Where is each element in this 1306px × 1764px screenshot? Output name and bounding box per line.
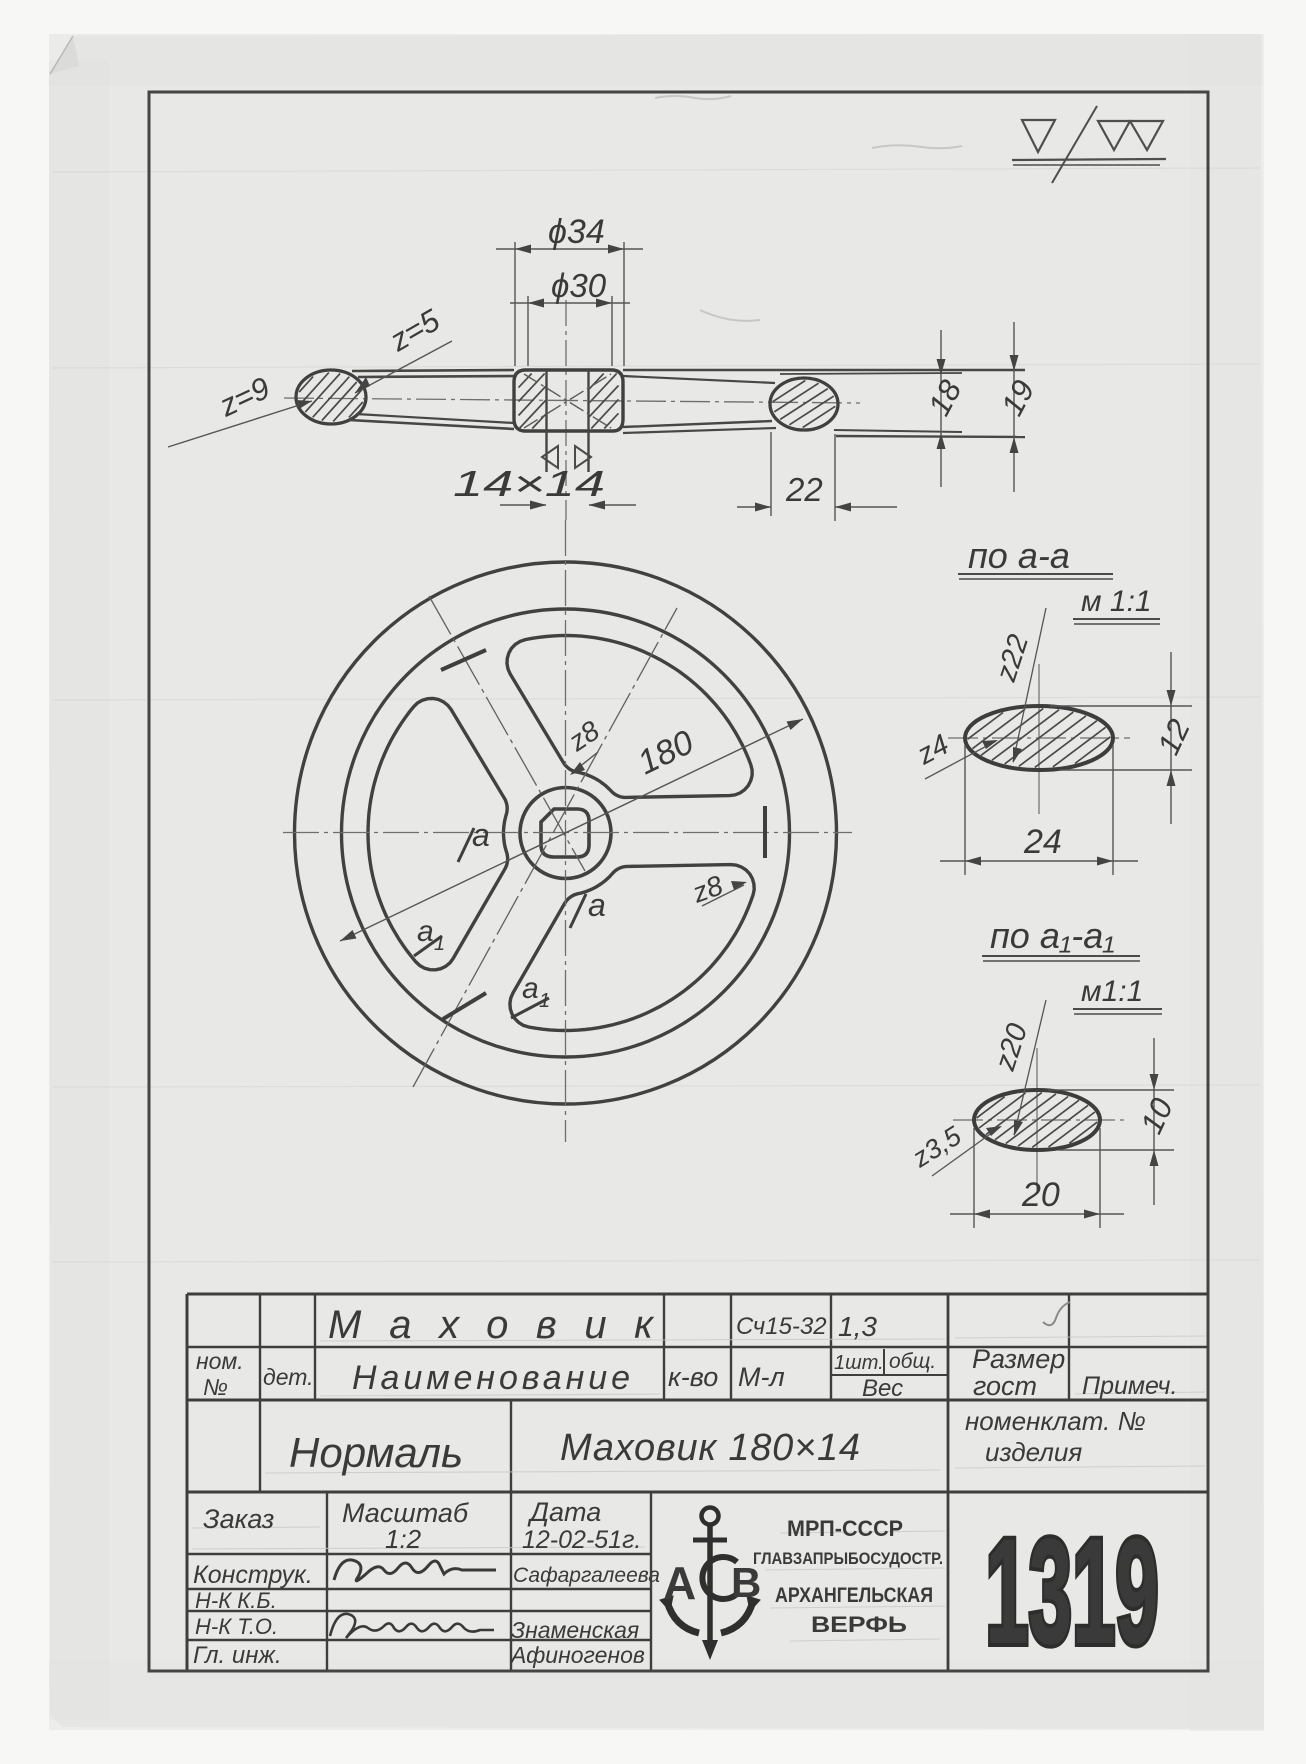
svg-text:22: 22 [785,471,823,508]
svg-text:общ.: общ. [889,1350,936,1373]
svg-text:24: 24 [1023,823,1062,861]
svg-text:Сч15-32: Сч15-32 [736,1313,827,1340]
svg-text:Примеч.: Примеч. [1082,1372,1177,1400]
svg-text:Гл. инж.: Гл. инж. [193,1642,282,1669]
svg-text:изделия: изделия [985,1437,1082,1467]
svg-text:ном.: ном. [196,1348,244,1374]
svg-text:Сафаргалеева: Сафаргалеева [513,1564,660,1587]
svg-text:Н-К К.Б.: Н-К К.Б. [195,1588,277,1613]
svg-text:Афиногенов: Афиногенов [509,1642,645,1668]
svg-text:А: А [663,1557,696,1609]
svg-text:Дата: Дата [527,1497,601,1527]
svg-text:Конструк.: Конструк. [193,1561,313,1589]
svg-text:20: 20 [1021,1176,1060,1214]
svg-text:1: 1 [539,990,550,1012]
svg-text:Размер: Размер [972,1344,1065,1374]
svg-text:ϕ30: ϕ30 [551,267,607,304]
svg-text:ϕ34: ϕ34 [548,213,605,251]
svg-text:ГЛАВЗАПРЫБОСУДОСТР.: ГЛАВЗАПРЫБОСУДОСТР. [753,1549,943,1568]
svg-text:1:2: 1:2 [385,1524,422,1554]
svg-text:14×14: 14×14 [453,463,605,504]
svg-text:Нормаль: Нормаль [289,1429,463,1476]
svg-text:по а₁-а₁: по а₁-а₁ [990,915,1115,956]
svg-text:12-02-51г.: 12-02-51г. [522,1526,641,1554]
svg-text:ВЕРФЬ: ВЕРФЬ [811,1612,907,1637]
svg-text:а: а [588,887,606,923]
svg-text:Н-К Т.О.: Н-К Т.О. [195,1614,278,1639]
svg-text:№: № [203,1374,228,1400]
svg-text:Вес: Вес [862,1375,903,1402]
svg-text:Маховик 180×14: Маховик 180×14 [560,1427,860,1469]
svg-text:гост: гост [973,1371,1037,1401]
svg-text:дет.: дет. [263,1364,314,1390]
svg-text:номенклат. №: номенклат. № [965,1406,1146,1436]
svg-text:Знаменская: Знаменская [511,1617,639,1643]
svg-text:Наименование: Наименование [352,1359,630,1397]
svg-text:а: а [522,972,539,1005]
svg-text:а: а [417,915,434,948]
svg-text:МРП-СССР: МРП-СССР [787,1516,903,1541]
svg-text:к-во: к-во [668,1362,718,1392]
svg-text:1319: 1319 [985,1509,1159,1676]
svg-text:1: 1 [434,933,445,955]
svg-text:1,3: 1,3 [838,1311,877,1342]
svg-text:м1:1: м1:1 [1081,975,1143,1008]
svg-text:М-л: М-л [738,1362,785,1392]
svg-text:Заказ: Заказ [203,1504,274,1534]
svg-text:по а-а: по а-а [968,535,1070,576]
svg-text:АРХАНГЕЛЬСКАЯ: АРХАНГЕЛЬСКАЯ [775,1584,933,1607]
svg-text:а: а [472,817,490,853]
svg-text:м 1:1: м 1:1 [1081,585,1152,618]
svg-text:1шт.: 1шт. [834,1352,884,1374]
